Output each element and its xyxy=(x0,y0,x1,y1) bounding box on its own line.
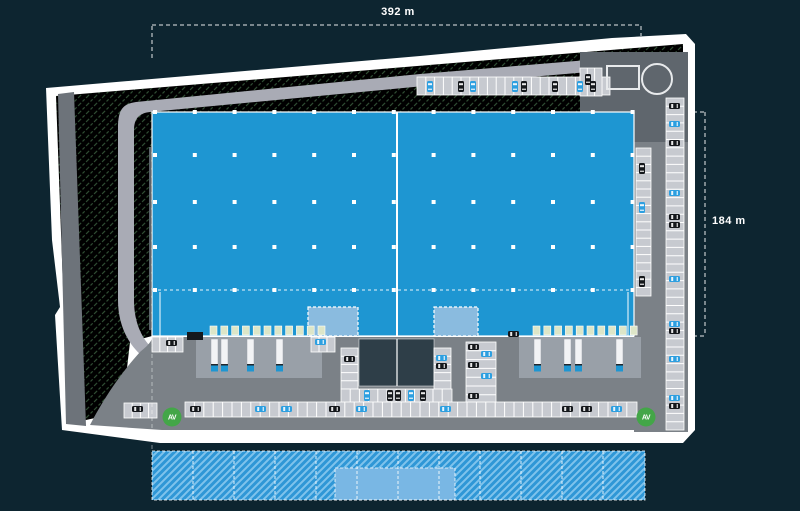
column-dot xyxy=(193,153,197,157)
dimension-height-label: 184 m xyxy=(712,215,746,227)
car-rear-window xyxy=(476,345,477,349)
car xyxy=(669,140,680,146)
car-rear-window xyxy=(289,407,290,411)
car-windshield xyxy=(192,407,194,411)
dock-door xyxy=(576,326,583,335)
car xyxy=(585,74,591,85)
car-windshield xyxy=(459,83,463,85)
car xyxy=(611,406,622,412)
column-dot xyxy=(272,200,276,204)
column-dot xyxy=(312,110,316,114)
car-rear-window xyxy=(198,407,199,411)
column-dot xyxy=(272,110,276,114)
dock-door xyxy=(221,326,228,335)
truck-axle xyxy=(575,364,582,366)
car xyxy=(468,393,479,399)
car-rear-window xyxy=(553,89,557,90)
column-dot xyxy=(631,110,635,114)
column-dot xyxy=(591,288,595,292)
car-windshield xyxy=(168,341,170,345)
dock-door xyxy=(555,326,562,335)
truck-cab xyxy=(276,366,283,372)
car-windshield xyxy=(591,83,595,85)
car-rear-window xyxy=(323,340,324,344)
column-dot xyxy=(511,245,515,249)
column-dot xyxy=(432,153,436,157)
car xyxy=(387,390,393,401)
car-windshield xyxy=(388,392,392,394)
column-dot xyxy=(392,200,396,204)
car-windshield xyxy=(671,357,673,361)
car-rear-window xyxy=(591,89,595,90)
car xyxy=(512,81,518,92)
column-dot xyxy=(153,245,157,249)
car-rear-window xyxy=(619,407,620,411)
car-windshield xyxy=(583,407,585,411)
column-dot xyxy=(312,200,316,204)
dock-door xyxy=(598,326,605,335)
truck-trailer xyxy=(211,339,218,365)
car xyxy=(364,390,370,401)
car-rear-window xyxy=(396,398,400,399)
column-dot xyxy=(511,110,515,114)
car xyxy=(458,81,464,92)
column-dot xyxy=(233,245,237,249)
column-dot xyxy=(312,153,316,157)
column-dot xyxy=(591,245,595,249)
dock-door xyxy=(307,326,314,335)
car xyxy=(356,406,367,412)
column-dot xyxy=(272,288,276,292)
building-footprint xyxy=(152,112,634,336)
car-windshield xyxy=(513,83,517,85)
column-dot xyxy=(153,200,157,204)
car-rear-window xyxy=(352,357,353,361)
car-windshield xyxy=(613,407,615,411)
expansion-solid-block xyxy=(335,468,455,500)
car-windshield xyxy=(671,329,673,333)
car-rear-window xyxy=(677,277,678,281)
car xyxy=(481,373,492,379)
car-windshield xyxy=(358,407,360,411)
column-dot xyxy=(392,153,396,157)
car-rear-window xyxy=(476,394,477,398)
car-windshield xyxy=(421,392,425,394)
car-rear-window xyxy=(522,89,526,90)
column-dot xyxy=(272,153,276,157)
car xyxy=(669,222,680,228)
car xyxy=(166,340,177,346)
car xyxy=(669,276,680,282)
car xyxy=(427,81,433,92)
column-dot xyxy=(352,200,356,204)
car-windshield xyxy=(438,364,440,368)
car-rear-window xyxy=(388,398,392,399)
car xyxy=(395,390,401,401)
car xyxy=(468,344,479,350)
truck-trailer xyxy=(247,339,254,365)
column-dot xyxy=(193,288,197,292)
truck-cab xyxy=(247,366,254,372)
car xyxy=(521,81,527,92)
dock-door xyxy=(210,326,217,335)
car-windshield xyxy=(586,76,590,78)
car xyxy=(639,202,645,213)
car-windshield xyxy=(510,332,512,336)
car-rear-window xyxy=(489,374,490,378)
dock-door xyxy=(587,326,594,335)
car-rear-window xyxy=(516,332,517,336)
car-windshield xyxy=(671,223,673,227)
column-dot xyxy=(392,245,396,249)
dock-door xyxy=(565,326,572,335)
office-mezzanine xyxy=(308,307,358,336)
truck-cab xyxy=(564,366,571,372)
car xyxy=(436,363,447,369)
car-windshield xyxy=(553,83,557,85)
car xyxy=(639,163,645,174)
car-windshield xyxy=(470,394,472,398)
column-dot xyxy=(432,288,436,292)
truck-cab xyxy=(211,366,218,372)
car-windshield xyxy=(671,215,673,219)
car-rear-window xyxy=(677,396,678,400)
entrance-logo-text: AV xyxy=(642,415,651,422)
truck-trailer xyxy=(575,339,582,365)
car xyxy=(281,406,292,412)
column-dot xyxy=(511,288,515,292)
dock-door xyxy=(619,326,626,335)
column-dot xyxy=(551,245,555,249)
car xyxy=(669,121,680,127)
car-windshield xyxy=(483,374,485,378)
car-windshield xyxy=(317,340,319,344)
truck-axle xyxy=(221,364,228,366)
car xyxy=(577,81,583,92)
car xyxy=(669,103,680,109)
car-windshield xyxy=(671,322,673,326)
car-rear-window xyxy=(677,357,678,361)
site-plan-canvas: AVAV 392 m 184 m xyxy=(0,0,800,511)
car-windshield xyxy=(365,392,369,394)
car xyxy=(581,406,592,412)
car-rear-window xyxy=(677,329,678,333)
column-dot xyxy=(631,153,635,157)
car-windshield xyxy=(396,392,400,394)
retaining-wall xyxy=(149,147,151,330)
truck-axle xyxy=(564,364,571,366)
car-windshield xyxy=(578,83,582,85)
car xyxy=(669,328,680,334)
car-windshield xyxy=(522,83,526,85)
office-mezzanine xyxy=(434,307,478,336)
car-rear-window xyxy=(586,82,590,83)
column-dot xyxy=(631,200,635,204)
dock-door xyxy=(242,326,249,335)
central-service-yard xyxy=(359,339,434,386)
car xyxy=(420,390,426,401)
dock-door xyxy=(296,326,303,335)
column-dot xyxy=(471,153,475,157)
column-dot xyxy=(511,153,515,157)
car-windshield xyxy=(428,83,432,85)
car xyxy=(508,331,519,337)
dock-door xyxy=(533,326,540,335)
car-rear-window xyxy=(677,104,678,108)
car-rear-window xyxy=(578,89,582,90)
car-windshield xyxy=(470,363,472,367)
column-dot xyxy=(471,110,475,114)
column-dot xyxy=(591,110,595,114)
car-rear-window xyxy=(174,341,175,345)
car-rear-window xyxy=(677,404,678,408)
car-windshield xyxy=(257,407,259,411)
column-dot xyxy=(392,110,396,114)
car-rear-window xyxy=(589,407,590,411)
truck-axle xyxy=(616,364,623,366)
column-dot xyxy=(471,245,475,249)
column-dot xyxy=(233,153,237,157)
car-rear-window xyxy=(263,407,264,411)
column-dot xyxy=(392,288,396,292)
column-dot xyxy=(551,200,555,204)
expansion-strip xyxy=(152,451,645,500)
car-windshield xyxy=(438,356,440,360)
column-dot xyxy=(233,110,237,114)
car-rear-window xyxy=(513,89,517,90)
car-windshield xyxy=(471,83,475,85)
car-rear-window xyxy=(640,284,644,285)
car-rear-window xyxy=(677,191,678,195)
car-windshield xyxy=(346,357,348,361)
column-dot xyxy=(193,200,197,204)
car-windshield xyxy=(671,122,673,126)
truck-trailer xyxy=(564,339,571,365)
truck-axle xyxy=(276,364,283,366)
column-dot xyxy=(352,245,356,249)
car xyxy=(481,351,492,357)
car-rear-window xyxy=(640,210,644,211)
column-dot xyxy=(352,153,356,157)
car xyxy=(190,406,201,412)
car xyxy=(669,403,680,409)
dock-door xyxy=(286,326,293,335)
column-dot xyxy=(551,288,555,292)
car-rear-window xyxy=(364,407,365,411)
truck-axle xyxy=(534,364,541,366)
car-rear-window xyxy=(476,363,477,367)
column-dot xyxy=(153,110,157,114)
car-windshield xyxy=(470,345,472,349)
column-dot xyxy=(352,110,356,114)
column-dot xyxy=(471,288,475,292)
car-windshield xyxy=(671,277,673,281)
column-dot xyxy=(432,200,436,204)
column-dot xyxy=(511,200,515,204)
car-windshield xyxy=(442,407,444,411)
car xyxy=(669,356,680,362)
column-dot xyxy=(193,245,197,249)
truck-cab xyxy=(616,366,623,372)
car-rear-window xyxy=(409,398,413,399)
car-rear-window xyxy=(444,364,445,368)
car-rear-window xyxy=(365,398,369,399)
car-windshield xyxy=(640,204,644,206)
car-rear-window xyxy=(459,89,463,90)
car xyxy=(440,406,451,412)
column-dot xyxy=(432,245,436,249)
dock-door xyxy=(264,326,271,335)
car-rear-window xyxy=(677,215,678,219)
column-dot xyxy=(432,110,436,114)
column-dot xyxy=(631,245,635,249)
column-dot xyxy=(233,200,237,204)
column-dot xyxy=(153,288,157,292)
column-dot xyxy=(153,153,157,157)
car-rear-window xyxy=(337,407,338,411)
car-windshield xyxy=(671,104,673,108)
car xyxy=(344,356,355,362)
column-dot xyxy=(471,200,475,204)
column-dot xyxy=(312,245,316,249)
car-windshield xyxy=(640,278,644,280)
car-rear-window xyxy=(421,398,425,399)
car xyxy=(639,276,645,287)
dock-door xyxy=(275,326,282,335)
car-windshield xyxy=(671,396,673,400)
dock-door xyxy=(232,326,239,335)
car-windshield xyxy=(671,141,673,145)
car-rear-window xyxy=(570,407,571,411)
dock-door xyxy=(609,326,616,335)
car-rear-window xyxy=(140,407,141,411)
car-rear-window xyxy=(677,122,678,126)
car-windshield xyxy=(283,407,285,411)
car-rear-window xyxy=(444,356,445,360)
dock-door xyxy=(318,326,325,335)
column-dot xyxy=(272,245,276,249)
car xyxy=(669,190,680,196)
car-rear-window xyxy=(677,141,678,145)
car-windshield xyxy=(640,165,644,167)
truck-cab xyxy=(221,366,228,372)
site-plan-drawing: AVAV xyxy=(0,0,800,511)
car-windshield xyxy=(483,352,485,356)
car xyxy=(669,214,680,220)
car xyxy=(436,355,447,361)
column-dot xyxy=(352,288,356,292)
column-dot xyxy=(193,110,197,114)
car-rear-window xyxy=(489,352,490,356)
column-dot xyxy=(551,110,555,114)
column-dot xyxy=(233,288,237,292)
car xyxy=(132,406,143,412)
parking-strip xyxy=(341,348,358,389)
truck-trailer xyxy=(276,339,283,365)
column-dot xyxy=(631,288,635,292)
car xyxy=(552,81,558,92)
car-windshield xyxy=(671,404,673,408)
car xyxy=(470,81,476,92)
car-rear-window xyxy=(448,407,449,411)
column-dot xyxy=(551,153,555,157)
truck-cab xyxy=(575,366,582,372)
dock-door xyxy=(253,326,260,335)
truck-axle xyxy=(247,364,254,366)
truck-cab xyxy=(534,366,541,372)
car-rear-window xyxy=(471,89,475,90)
car-rear-window xyxy=(677,223,678,227)
entrance-logo-text: AV xyxy=(168,415,177,422)
car-windshield xyxy=(671,191,673,195)
dimension-width-label: 392 m xyxy=(368,6,428,18)
warehouse-building xyxy=(149,110,637,340)
truck-trailer xyxy=(534,339,541,365)
car xyxy=(468,362,479,368)
car xyxy=(669,321,680,327)
dock-door xyxy=(544,326,551,335)
car xyxy=(562,406,573,412)
car xyxy=(669,395,680,401)
car-windshield xyxy=(134,407,136,411)
column-dot xyxy=(312,288,316,292)
car-windshield xyxy=(409,392,413,394)
truck-trailer xyxy=(221,339,228,365)
column-dot xyxy=(591,153,595,157)
car xyxy=(329,406,340,412)
car xyxy=(255,406,266,412)
car xyxy=(315,339,326,345)
column-dot xyxy=(591,200,595,204)
dock-ramp xyxy=(187,332,203,340)
car xyxy=(408,390,414,401)
car-windshield xyxy=(331,407,333,411)
car-rear-window xyxy=(677,322,678,326)
car-windshield xyxy=(564,407,566,411)
truck-axle xyxy=(211,364,218,366)
car-rear-window xyxy=(640,171,644,172)
truck-trailer xyxy=(616,339,623,365)
car-rear-window xyxy=(428,89,432,90)
dock-door xyxy=(630,326,637,335)
